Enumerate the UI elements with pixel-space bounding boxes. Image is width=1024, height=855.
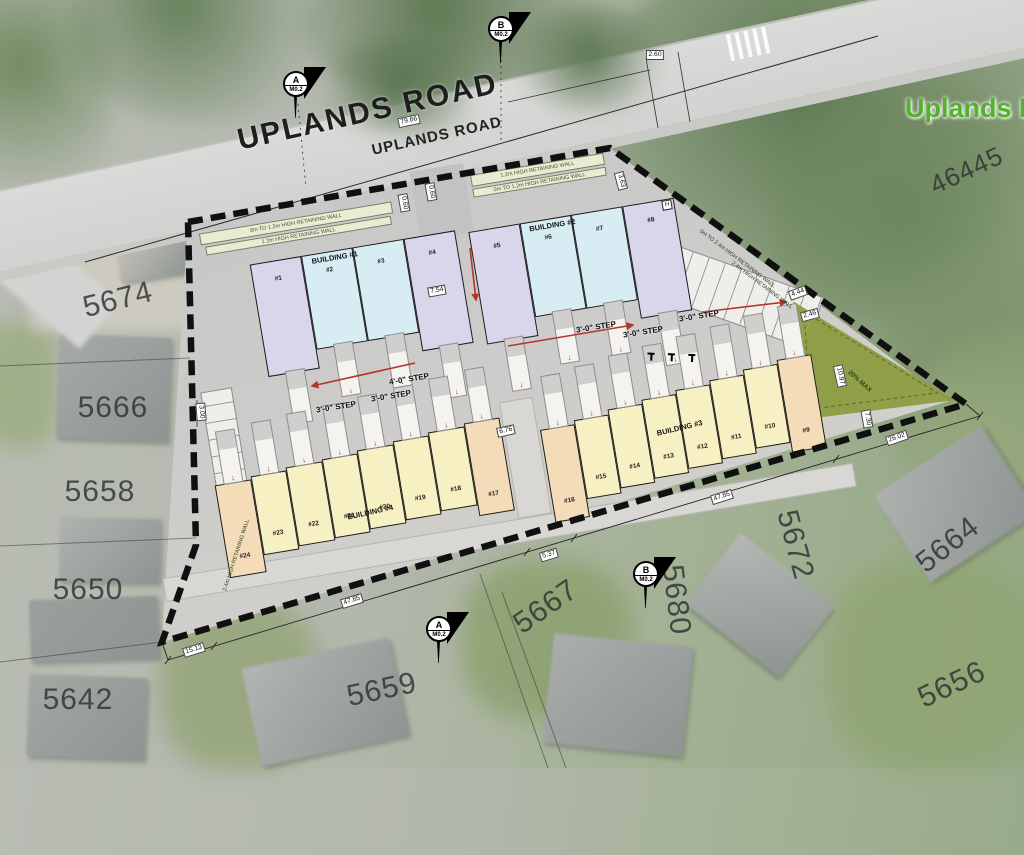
lot-number-label: 5656 [913,655,991,716]
dimension-label: 10.97 [833,364,847,388]
dimension-label: 5.37 [539,548,559,563]
retaining-wall-note: 2.4m HIGH RETAINING WALL [222,519,251,592]
dimension-label: 15.13 [182,642,206,658]
section-marker-stem [437,641,440,663]
step-note-label: 4'-0" STEP [388,371,429,386]
dimension-label: 6.76 [496,424,516,438]
section-marker-letter: A [428,620,450,631]
section-marker-circle: AM0.2 [283,71,309,97]
dimension-label: 26.02 [885,430,909,447]
section-marker-circle: BM0.2 [633,561,659,587]
annotation-layer: UPLANDS ROAD UPLANDS ROAD Uplands P 4644… [0,0,1024,768]
dimension-label: 3.00 [195,402,207,421]
step-note-label: 3'-0" STEP [370,388,411,403]
section-marker-letter: A [285,75,307,86]
lot-number-label: 5667 [507,573,584,641]
section-marker: AM0.2 [283,71,309,97]
section-marker-letter: B [635,565,657,576]
dimension-label: 4.44 [788,285,809,301]
section-marker-sheet: M0.2 [289,86,302,94]
dimension-label: 7.54 [427,284,447,297]
parcel-number-label: 46445 [925,140,1008,201]
dimension-label: 2.46 [800,308,820,322]
lot-number-label: 5659 [344,666,420,714]
section-marker: AM0.2 [426,616,452,642]
section-marker-sheet: M0.2 [432,631,445,639]
step-note-label: 3'-0" STEP [315,399,356,414]
lot-number-label: 5650 [53,573,124,607]
section-marker-stem [644,586,647,608]
section-marker-circle: BM0.2 [488,16,514,42]
dimension-label: 0.60 [397,193,410,213]
step-note-label: 3'-0" STEP [678,308,719,323]
dimension-label: 2.60 [646,50,664,60]
section-marker-circle: AM0.2 [426,616,452,642]
road-name-large: UPLANDS ROAD [234,67,501,158]
lot-number-label: 5658 [65,475,136,509]
dimension-label: 3.63 [614,171,628,191]
dimension-label: 47.85 [340,593,364,609]
section-marker: BM0.2 [488,16,514,42]
dimension-label: 0.60 [424,182,437,202]
retaining-wall-note: 2.4m HIGH RETAINING WALL [730,261,793,311]
lot-number-label: 5664 [910,510,987,580]
lot-number-label: 5642 [43,683,114,717]
dimension-label: 7.30 [860,409,873,429]
retaining-wall-note: 0m TO 2.4m HIGH RETAINING WALL [698,229,776,290]
dimension-label: 47.85 [710,489,734,505]
park-name-label: Uplands P [905,93,1024,124]
step-note-label: 3'-0" STEP [622,324,663,339]
lot-number-label: 5666 [78,391,149,425]
section-marker: BM0.2 [633,561,659,587]
lot-number-label: 5674 [80,275,157,325]
section-marker-stem [499,41,502,63]
hydrant-marker: H [661,199,673,211]
step-note-label: 3'-0" STEP [575,319,616,334]
section-marker-sheet: M0.2 [639,576,652,584]
lot-number-label: 5672 [769,506,820,583]
section-marker-sheet: M0.2 [494,31,507,39]
section-marker-letter: B [490,20,512,31]
slope-max-label: 20% MAX [846,369,872,394]
